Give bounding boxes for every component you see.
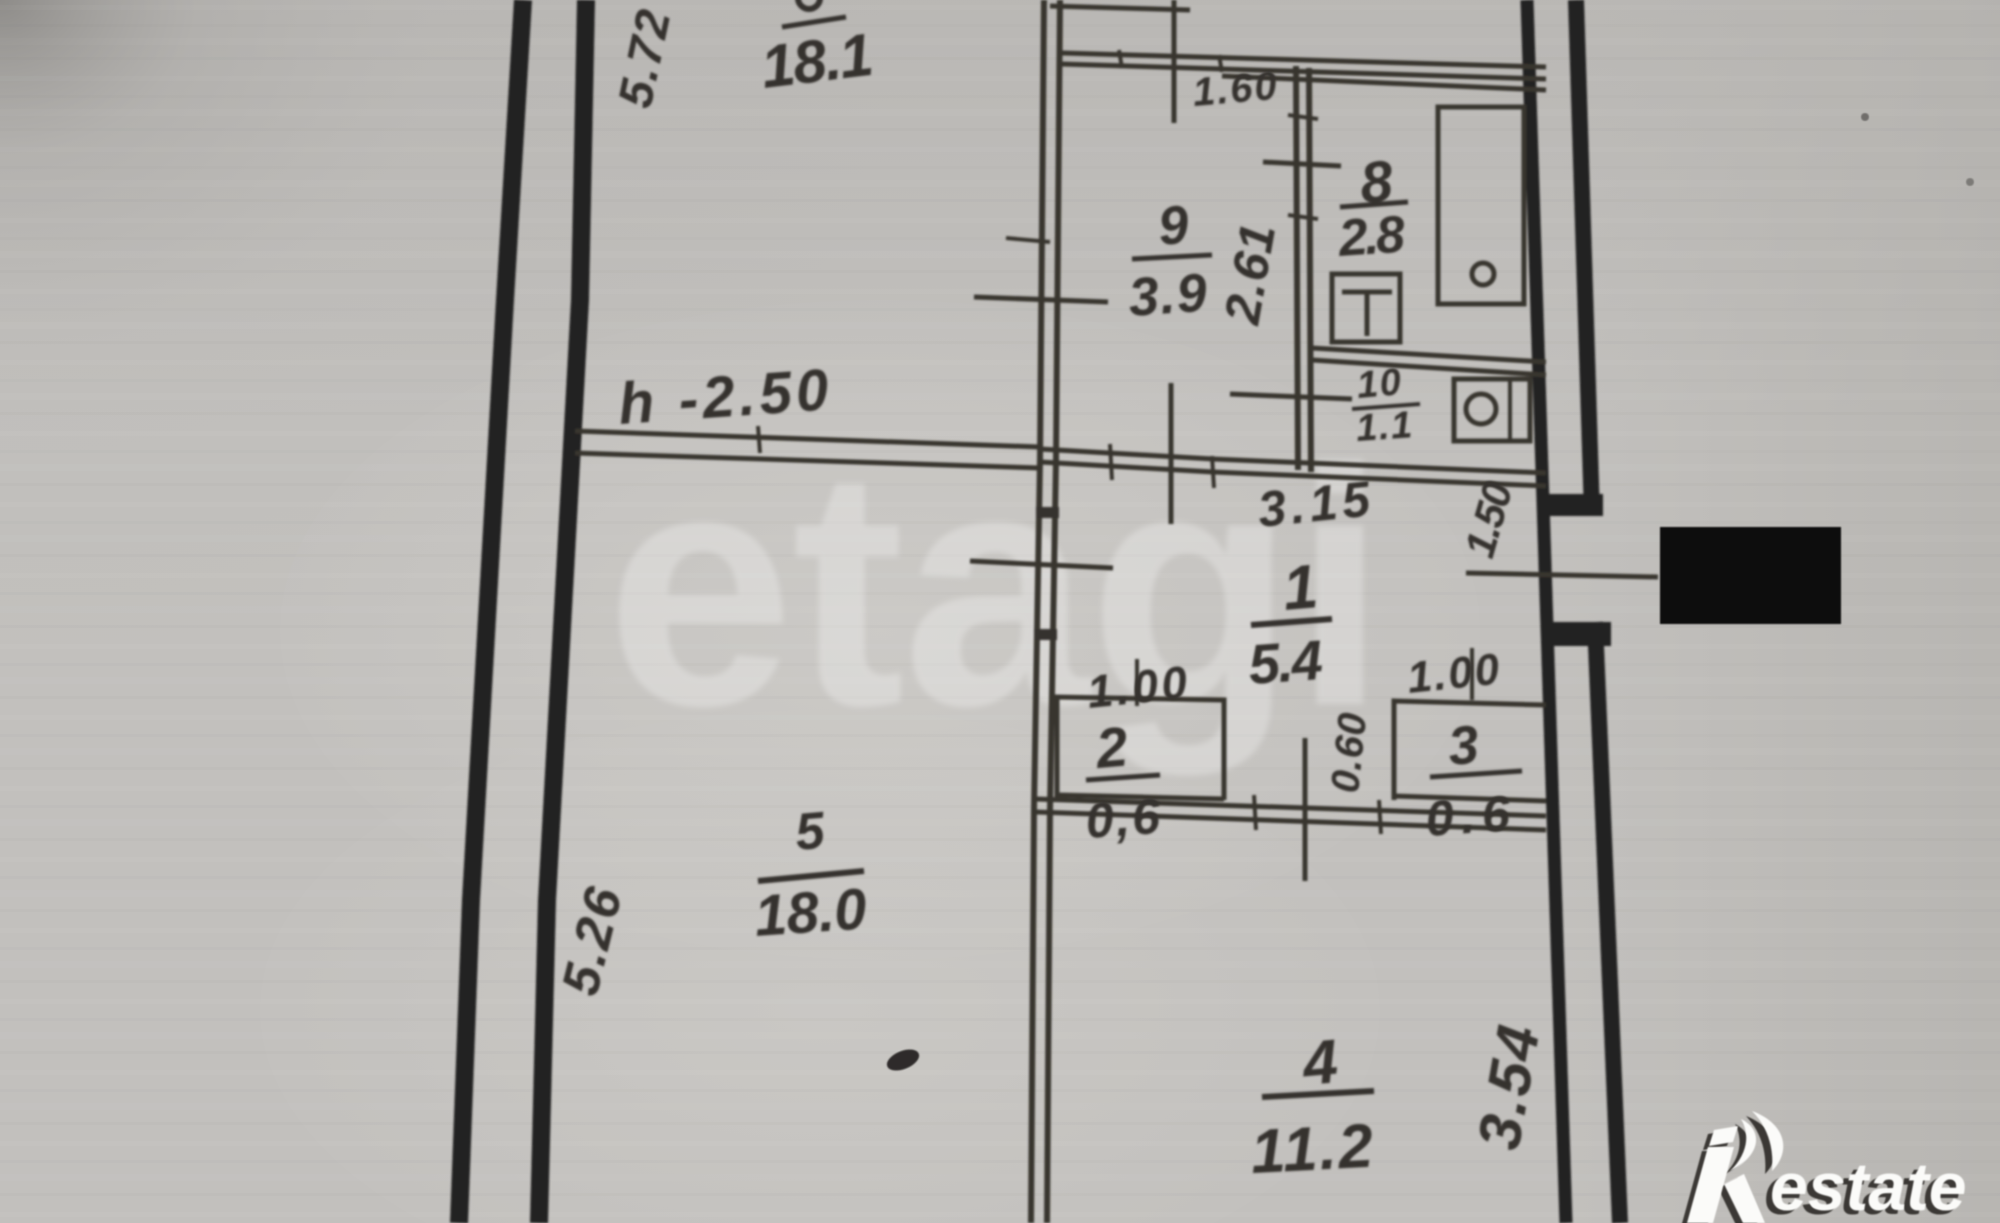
svg-text:3.9: 3.9: [1127, 263, 1209, 328]
svg-text:1.60: 1.60: [1191, 64, 1279, 115]
svg-text:0.60: 0.60: [1323, 711, 1375, 795]
svg-text:18.1: 18.1: [757, 21, 876, 101]
svg-text:5.4: 5.4: [1246, 628, 1324, 696]
svg-text:4: 4: [1298, 1027, 1340, 1099]
svg-text:9: 9: [1156, 195, 1191, 257]
svg-text:2.8: 2.8: [1336, 206, 1407, 269]
svg-text:2: 2: [1093, 714, 1131, 780]
svg-text:etagi: etagi: [606, 398, 1385, 778]
svg-text:3: 3: [1446, 715, 1481, 777]
svg-text:1.00: 1.00: [1085, 656, 1190, 718]
svg-text:1.1: 1.1: [1355, 404, 1414, 450]
svg-text:18.0: 18.0: [752, 876, 868, 949]
svg-text:11.2: 11.2: [1249, 1112, 1374, 1187]
svg-text:estate: estate: [1770, 1149, 1967, 1223]
svg-text:1.00: 1.00: [1405, 645, 1502, 703]
svg-text:1: 1: [1280, 552, 1320, 624]
svg-text:3.15: 3.15: [1255, 470, 1373, 538]
svg-text:0,6: 0,6: [1084, 788, 1163, 849]
svg-text:10: 10: [1355, 361, 1402, 407]
svg-text:0.6: 0.6: [1424, 785, 1513, 847]
